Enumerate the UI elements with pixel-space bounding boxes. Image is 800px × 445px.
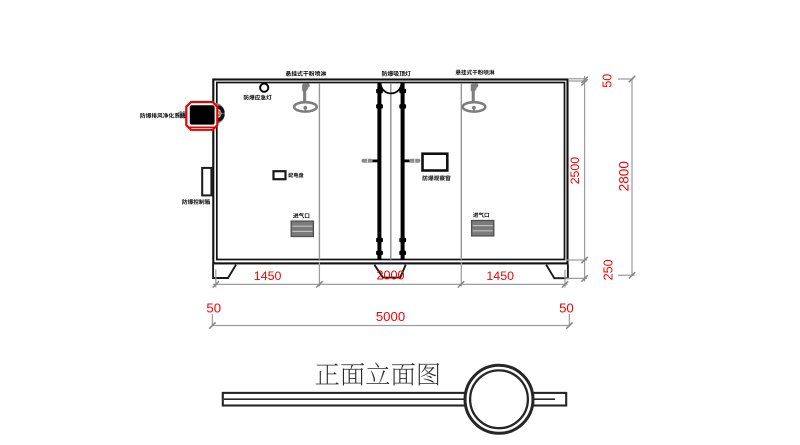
svg-text:50: 50	[601, 74, 615, 88]
svg-text:2500: 2500	[568, 157, 582, 185]
svg-text:50: 50	[559, 300, 574, 315]
svg-text:2800: 2800	[616, 161, 631, 192]
svg-text:1450: 1450	[486, 269, 514, 283]
svg-text:1450: 1450	[254, 269, 282, 283]
svg-text:50: 50	[206, 300, 221, 315]
svg-text:250: 250	[602, 259, 616, 280]
svg-text:5000: 5000	[376, 309, 405, 324]
svg-text:2000: 2000	[376, 269, 404, 283]
